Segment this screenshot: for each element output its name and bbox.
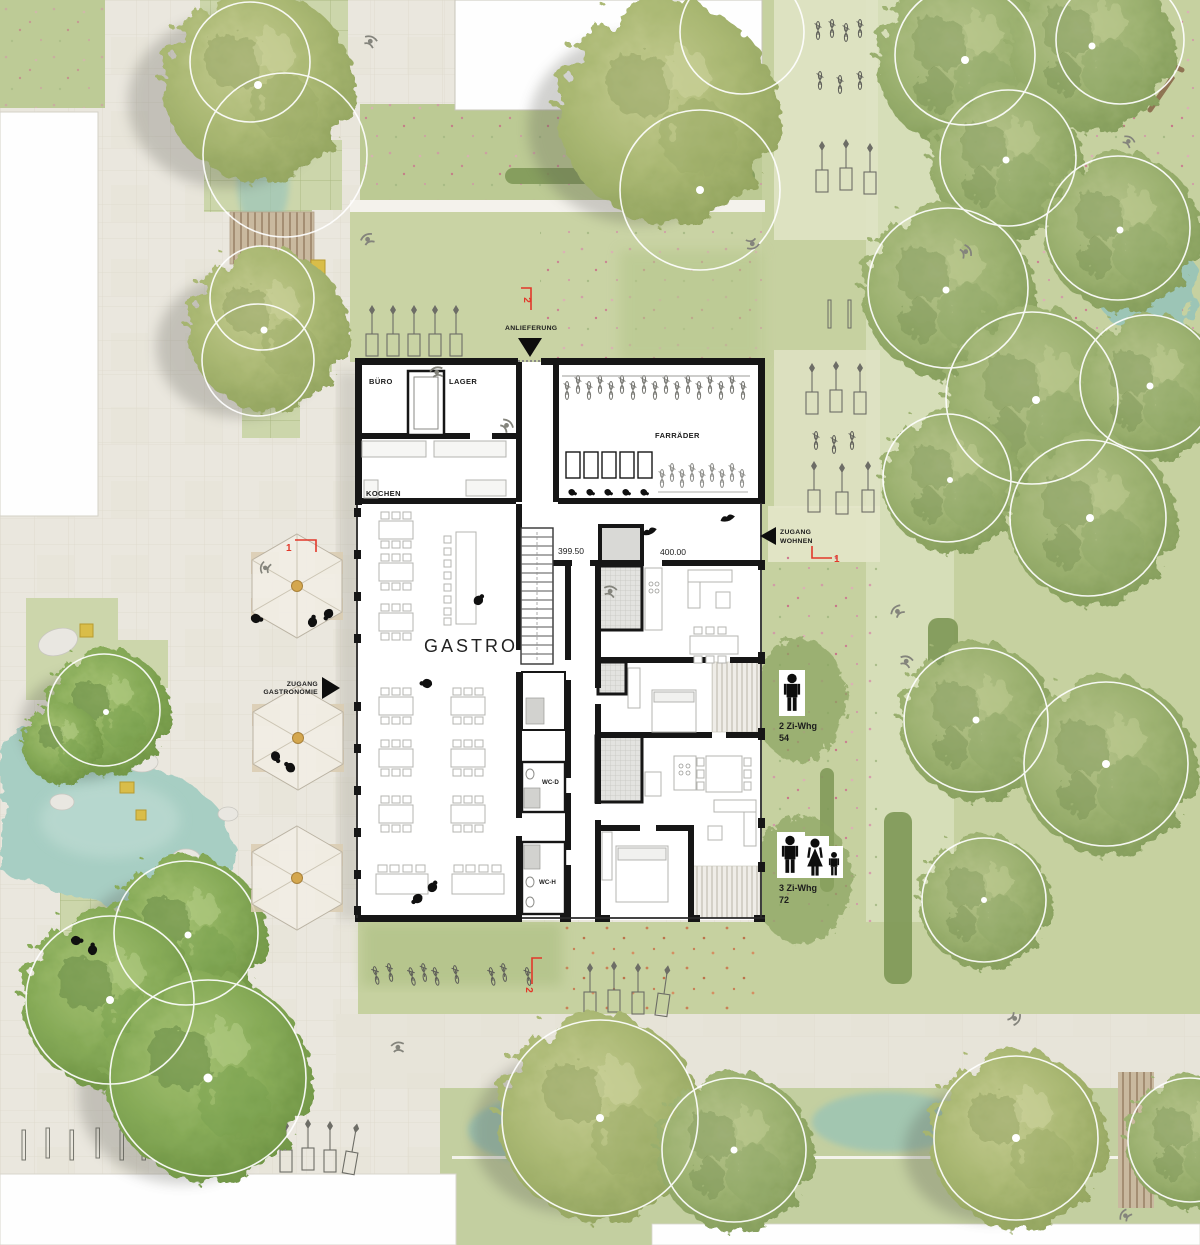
site-plan: BÜRO LAGER KOCHEN FARRÄDER GASTRO WC-D W… [0,0,1200,1245]
room-label-buero: BÜRO [369,377,393,386]
room-label-wc-d: WC-D [542,779,559,786]
terrace-deck-1 [712,662,760,732]
section-marker-top: 2 [521,297,532,303]
staircase [521,528,553,664]
elevator [600,526,642,562]
apartment-area-2zi: 54 [779,733,789,743]
level-gastro: 399.50 [558,546,584,556]
apartment-type-3zi: 3 Zi-Whg [779,883,817,893]
level-wohnen: 400.00 [660,547,686,557]
room-label-wc-h: WC-H [539,879,556,886]
room-label-gastro: GASTRO [424,636,518,656]
wc-block [522,672,565,914]
bathroom-3 [596,736,642,802]
section-marker-plaza: 1 [286,543,292,554]
site-plan-drawing: BÜRO LAGER KOCHEN FARRÄDER GASTRO WC-D W… [0,0,1200,1245]
anlieferung-label: ANLIEFERUNG [505,325,557,332]
zugang-gastro-line1: ZUGANG [287,681,318,688]
apartment-area-3zi: 72 [779,895,789,905]
north-lawn [350,212,762,362]
room-label-kochen: KOCHEN [366,489,401,498]
zugang-gastro-line2: GASTRONOMIE [263,689,318,696]
storage-closet [408,371,444,435]
adjacent-building-southwest [0,1174,456,1245]
adjacent-building-west [0,112,98,516]
terrace-deck-2 [690,866,760,918]
room-label-lager: LAGER [449,377,477,386]
room-label-fahrraeder: FARRÄDER [655,431,700,440]
building-footprint: BÜRO LAGER KOCHEN FARRÄDER GASTRO WC-D W… [354,358,765,922]
zugang-wohnen-line1: ZUGANG [780,529,811,536]
apartment-type-2zi: 2 Zi-Whg [779,721,817,731]
bathroom-2 [598,662,626,694]
zugang-wohnen-line2: WOHNEN [780,538,813,545]
section-marker-bottom: 2 [523,987,534,993]
bathroom-1 [598,566,642,630]
section-marker-park: 1 [834,554,840,565]
